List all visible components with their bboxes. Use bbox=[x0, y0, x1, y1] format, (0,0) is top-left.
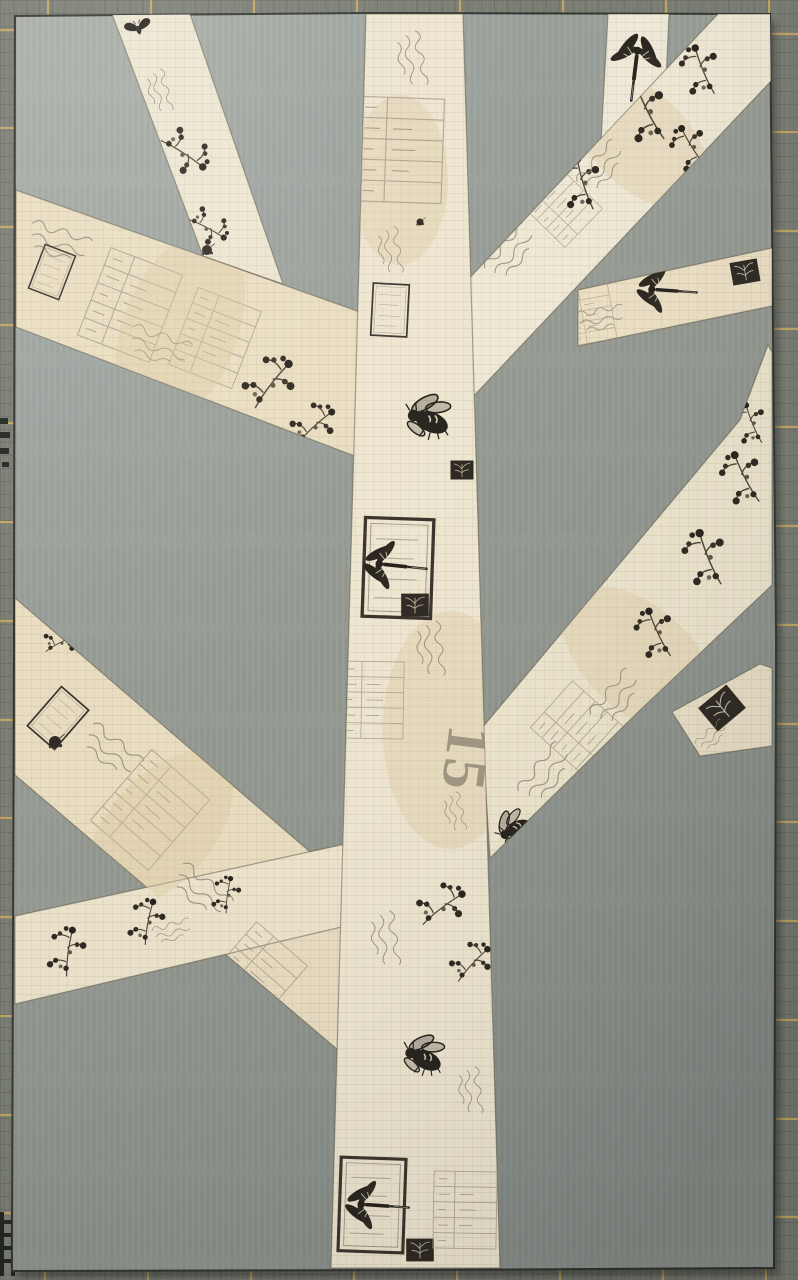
print-stampfill-motif bbox=[401, 594, 429, 617]
mat-ruler-mark bbox=[0, 418, 8, 424]
scene-svg: 15 bbox=[0, 0, 798, 1280]
print-clip-group bbox=[401, 594, 429, 617]
quilt-block-photo: 15 bbox=[0, 0, 798, 1280]
mat-ruler-mark bbox=[2, 1246, 12, 1250]
print-clip-group bbox=[451, 461, 474, 480]
mat-ruler-mark bbox=[2, 462, 9, 467]
quilt-block-content bbox=[0, 0, 798, 1280]
print-clip-group bbox=[406, 1239, 434, 1262]
print-clip-group bbox=[729, 258, 760, 285]
print-stampfill-motif bbox=[406, 1239, 434, 1262]
print-stampfill-motif bbox=[451, 461, 474, 480]
mat-ruler-mark bbox=[2, 1233, 12, 1237]
mat-ruler-mark bbox=[0, 432, 10, 438]
print-stampfill-motif bbox=[729, 258, 760, 285]
mat-ruler-mark bbox=[0, 448, 9, 454]
mat-ruler-mark bbox=[2, 1220, 12, 1224]
mat-ruler-mark bbox=[2, 1259, 12, 1263]
